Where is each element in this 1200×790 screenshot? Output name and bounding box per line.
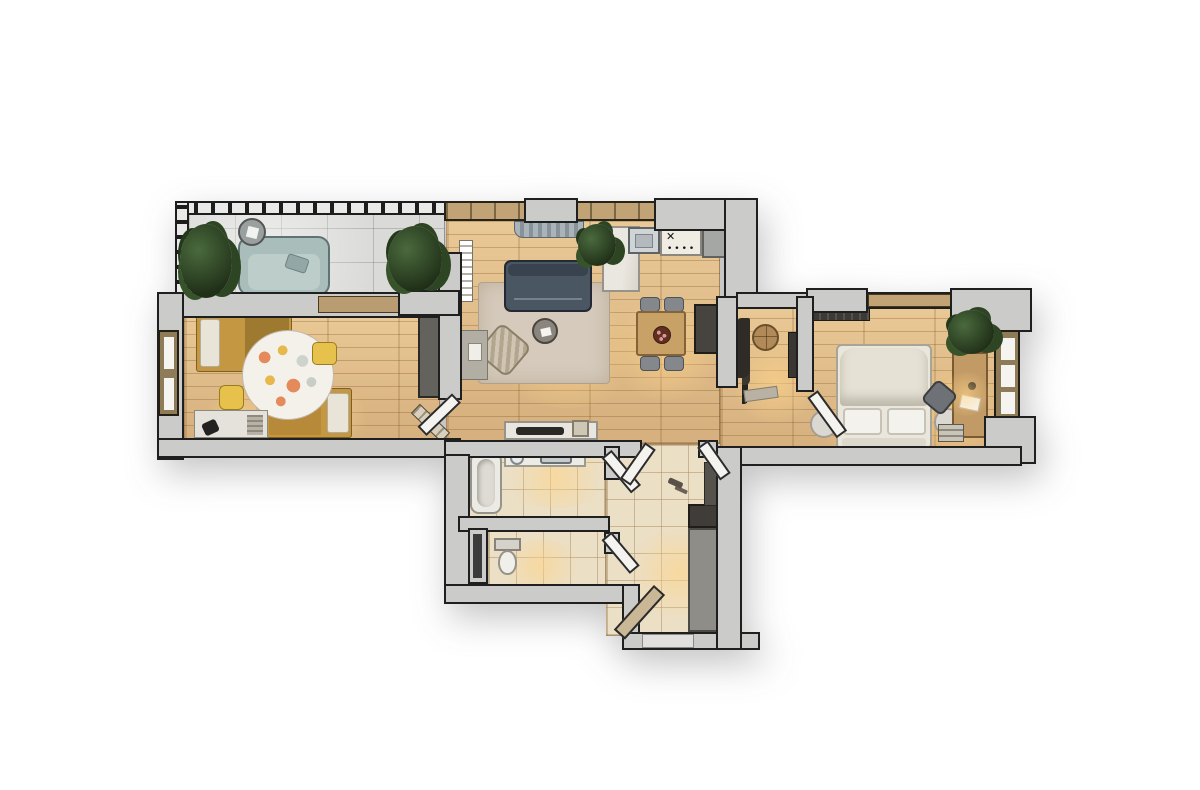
duct-shaft-slot [473,534,482,578]
kids-bed-bottom-pillow [327,393,349,433]
desk-papers [959,394,981,412]
hob-burners: ✕ [666,230,700,244]
desk-lamp [968,382,976,390]
apartment-floor-plan: ✕ •••• [0,0,1200,790]
corridor-round-mirror [752,324,779,351]
wall-pillar-living-top [524,198,578,223]
plan-render-group: ✕ •••• [0,0,1200,790]
bathtub-basin [477,459,495,507]
console-soundbar [516,427,564,435]
entry-upper-box [688,504,718,528]
master-bed-pillow-left [843,408,882,435]
window-pane [1001,392,1015,414]
dining-centerpiece-plate [653,326,671,344]
entry-wardrobe [688,528,718,632]
bathtub [470,452,502,514]
side-table-tray [246,226,259,239]
window-pane [164,337,174,369]
media-stand-frame [468,343,482,361]
master-plant [948,310,994,354]
hob-knobs: •••• [667,244,701,254]
front-door-threshold [642,634,694,648]
console-picture-frame [572,420,589,437]
corridor-coat-rack [736,318,750,378]
wall-pillar-master-top [806,288,868,313]
master-books-stack [938,424,964,442]
master-right-window [994,330,1020,418]
dining-chair [640,297,660,312]
pergola-slat-roof [175,201,447,215]
kids-pouf-yellow [219,385,244,410]
master-bed-duvet [840,348,928,406]
kids-bed-top-pillow [200,319,220,367]
living-coffee-table [532,318,558,344]
sofa-backrest [508,264,588,276]
wall-master-bottom [716,446,1022,466]
wall-stub-kids [398,290,460,316]
kids-desk [194,410,268,438]
dining-chair [640,356,660,371]
dining-table [636,311,686,356]
loveseat-seat-cushion [248,254,320,290]
living-curtains [514,221,584,238]
wall-corridor-master [796,296,814,392]
wall-bottom-left [157,438,461,458]
balcony-sliding-door-sill [318,296,404,313]
coffee-table-notebook [540,327,551,337]
kids-desk-books [247,415,263,435]
kitchen-hob-counter: ✕ •••• [660,227,702,256]
wall-wc-bottom [444,584,640,604]
kids-window [158,330,179,416]
dining-chair [664,356,684,371]
floor-plan-canvas: ✕ •••• [0,0,1200,790]
living-plant [578,224,616,266]
window-pane [1001,338,1015,360]
kids-desk-chair-yellow [312,342,337,365]
hall-console [504,421,598,440]
wall-dining-corridor [716,296,738,388]
balcony-plant-right [388,226,442,292]
master-bed [836,344,932,450]
sink-basin [635,234,653,248]
balcony-side-table [238,218,266,246]
master-bed-pillow-right [887,408,926,435]
living-sofa [504,260,592,312]
living-media-stand [460,330,488,380]
master-top-window-segment [868,294,952,307]
kids-desk-lamp [201,418,220,436]
window-pane [164,378,174,410]
wall-kids-living-divider [438,252,462,400]
kitchen-sink [628,227,660,254]
window-pane [1001,365,1015,387]
dining-chair [664,297,684,312]
balcony-plant-left [180,224,232,298]
sofa-seat-line [514,298,582,300]
toilet-bowl [498,550,517,575]
